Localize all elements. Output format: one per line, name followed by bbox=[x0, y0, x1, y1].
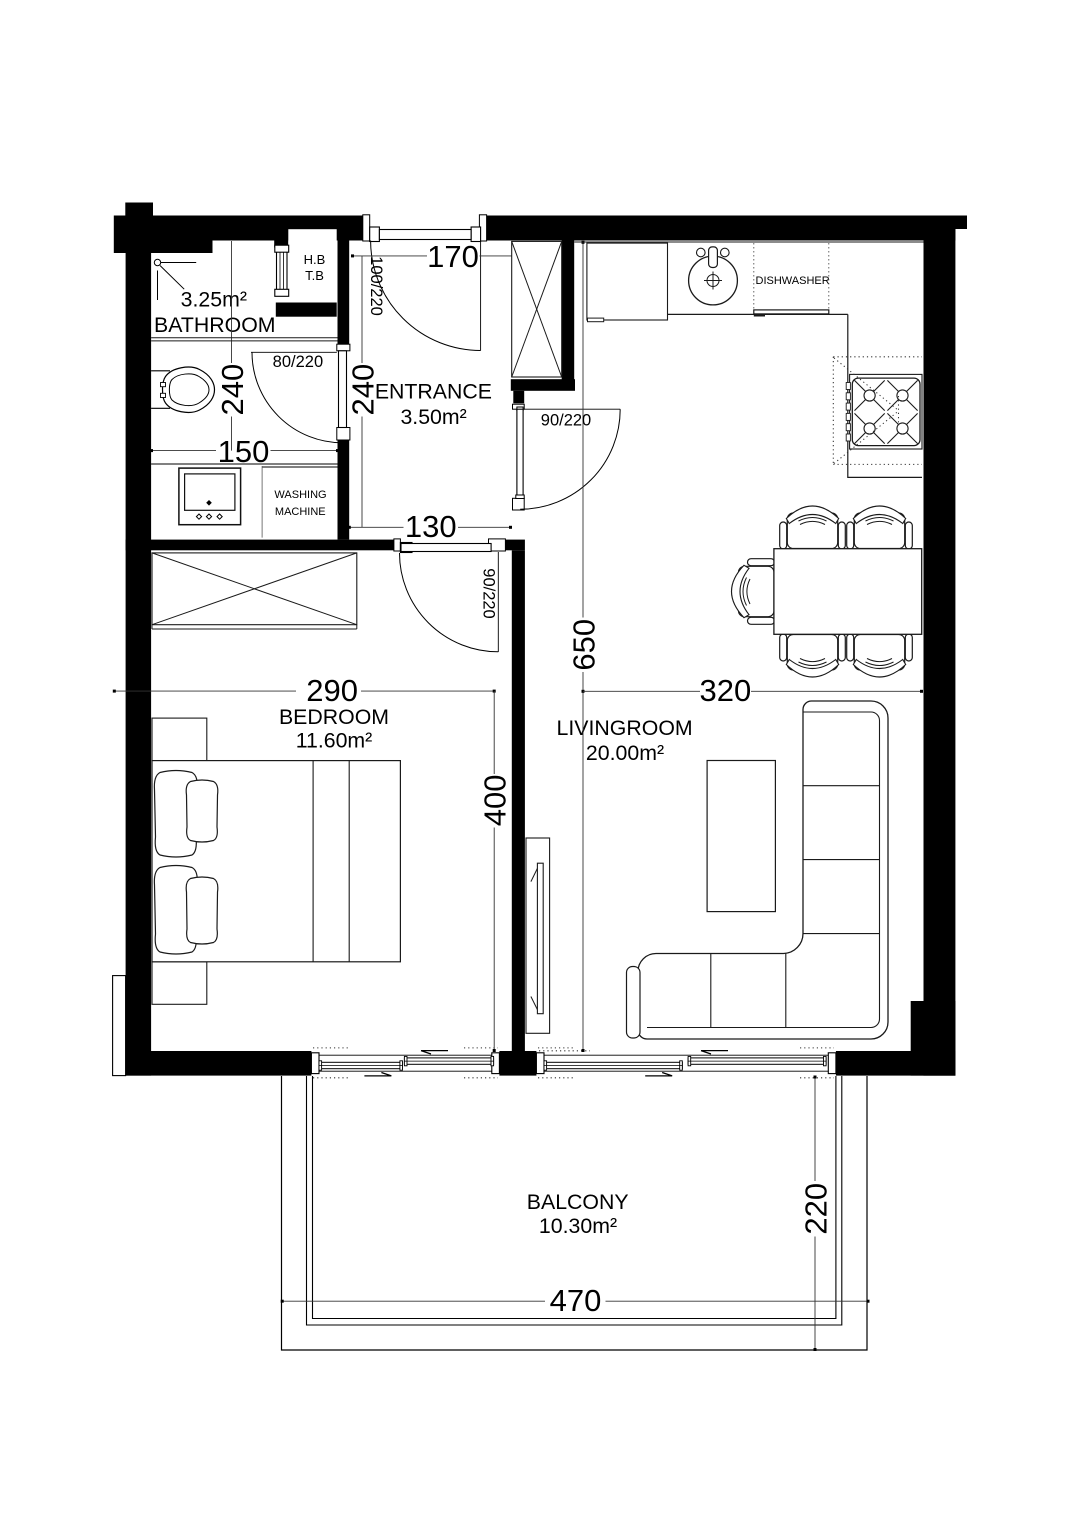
svg-text:400: 400 bbox=[478, 775, 513, 827]
svg-text:3.25m²: 3.25m² bbox=[181, 288, 247, 312]
svg-text:20.00m²: 20.00m² bbox=[586, 741, 664, 765]
svg-text:470: 470 bbox=[550, 1283, 602, 1318]
svg-text:240: 240 bbox=[345, 364, 380, 416]
svg-text:650: 650 bbox=[566, 619, 601, 671]
svg-text:H.B: H.B bbox=[304, 252, 326, 267]
svg-text:BATHROOM: BATHROOM bbox=[154, 313, 275, 337]
svg-text:LIVINGROOM: LIVINGROOM bbox=[557, 716, 693, 740]
svg-text:100/220: 100/220 bbox=[367, 256, 385, 316]
svg-text:3.50m²: 3.50m² bbox=[400, 405, 466, 429]
svg-text:220: 220 bbox=[798, 1183, 833, 1235]
svg-text:290: 290 bbox=[306, 673, 358, 708]
svg-text:90/220: 90/220 bbox=[479, 568, 497, 618]
svg-text:WASHING: WASHING bbox=[274, 489, 326, 501]
svg-text:90/220: 90/220 bbox=[541, 412, 591, 430]
svg-text:11.60m²: 11.60m² bbox=[296, 729, 373, 753]
svg-text:80/220: 80/220 bbox=[273, 353, 323, 371]
svg-text:MACHINE: MACHINE bbox=[275, 506, 326, 518]
svg-text:10.30m²: 10.30m² bbox=[539, 1214, 617, 1238]
svg-text:BALCONY: BALCONY bbox=[527, 1190, 629, 1214]
svg-text:240: 240 bbox=[215, 364, 250, 416]
svg-text:ENTRANCE: ENTRANCE bbox=[375, 379, 492, 403]
svg-text:170: 170 bbox=[427, 239, 479, 274]
svg-text:DISHWASHER: DISHWASHER bbox=[756, 275, 830, 287]
svg-text:320: 320 bbox=[700, 673, 752, 708]
svg-text:BEDROOM: BEDROOM bbox=[279, 705, 389, 729]
svg-text:130: 130 bbox=[405, 509, 457, 544]
svg-text:T.B: T.B bbox=[305, 268, 324, 283]
